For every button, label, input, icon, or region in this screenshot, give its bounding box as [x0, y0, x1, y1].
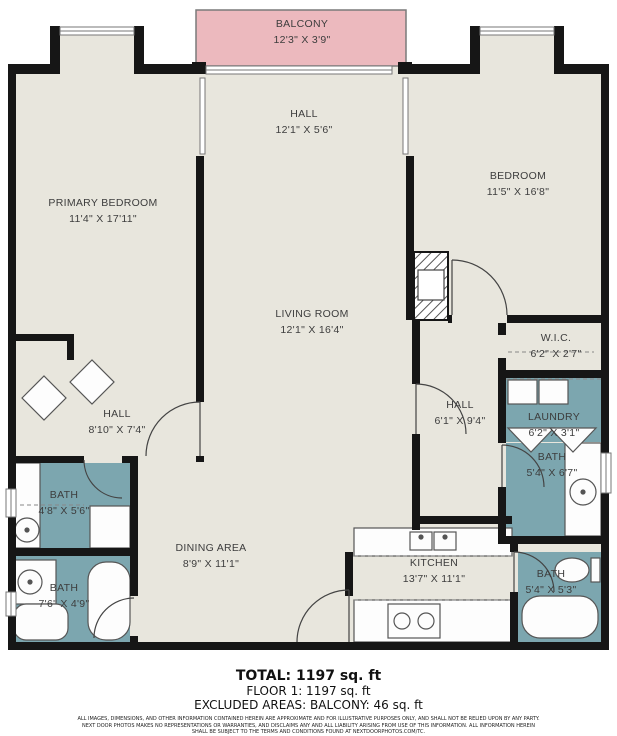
dryer — [539, 380, 568, 404]
washer — [508, 380, 537, 404]
tub — [522, 596, 598, 638]
tub — [88, 562, 130, 640]
room-label-primary-bedroom: PRIMARY BEDROOM 11'4" X 17'11" — [48, 195, 157, 227]
room-label-kitchen: KITCHEN 13'7" X 11'1" — [403, 555, 465, 587]
room-label-living-room: LIVING ROOM 12'1" X 16'4" — [275, 306, 348, 338]
stove-icon — [388, 604, 440, 638]
opening — [200, 78, 205, 154]
room-label-bath-left-bottom: BATH 7'6" X 4'9" — [39, 580, 90, 612]
room-label-hall-top: HALL 12'1" X 5'6" — [275, 106, 332, 138]
room-label-bath-left-top: BATH 4'8" X 5'6" — [39, 487, 90, 519]
room-label-hall-right: HALL 6'1" X 9'4" — [435, 397, 486, 429]
room-label-hall-left: HALL 8'10" X 7'4" — [88, 406, 145, 438]
utility-shaft — [414, 252, 448, 320]
floor-plan: BALCONY 12'3" X 3'9" HALL 12'1" X 5'6" P… — [0, 0, 617, 736]
kitchen-counter — [354, 528, 512, 556]
opening — [403, 78, 408, 154]
room-label-wic: W.I.C. 6'2" X 2'7" — [531, 330, 582, 362]
toilet-tank — [591, 558, 600, 582]
floor1-area: FLOOR 1: 1197 sq. ft — [0, 684, 617, 698]
excluded-area: EXCLUDED AREAS: BALCONY: 46 sq. ft — [0, 698, 617, 712]
room-label-bedroom: BEDROOM 11'5" X 16'8" — [487, 168, 549, 200]
room-label-laundry: LAUNDRY 6'2" X 3'1" — [528, 409, 580, 441]
disclaimer: ALL IMAGES, DIMENSIONS, AND OTHER INFORM… — [0, 716, 617, 736]
area-summary: TOTAL: 1197 sq. ft FLOOR 1: 1197 sq. ft … — [0, 668, 617, 736]
room-label-dining-area: DINING AREA 8'9" X 11'1" — [176, 540, 247, 572]
total-area: TOTAL: 1197 sq. ft — [0, 668, 617, 684]
room-label-balcony: BALCONY 12'3" X 3'9" — [273, 16, 330, 48]
room-label-bath-bottom-right: BATH 5'4" X 5'3" — [526, 566, 577, 598]
room-label-bath-right: BATH 5'4" X 6'7" — [527, 449, 578, 481]
shower — [90, 506, 130, 548]
